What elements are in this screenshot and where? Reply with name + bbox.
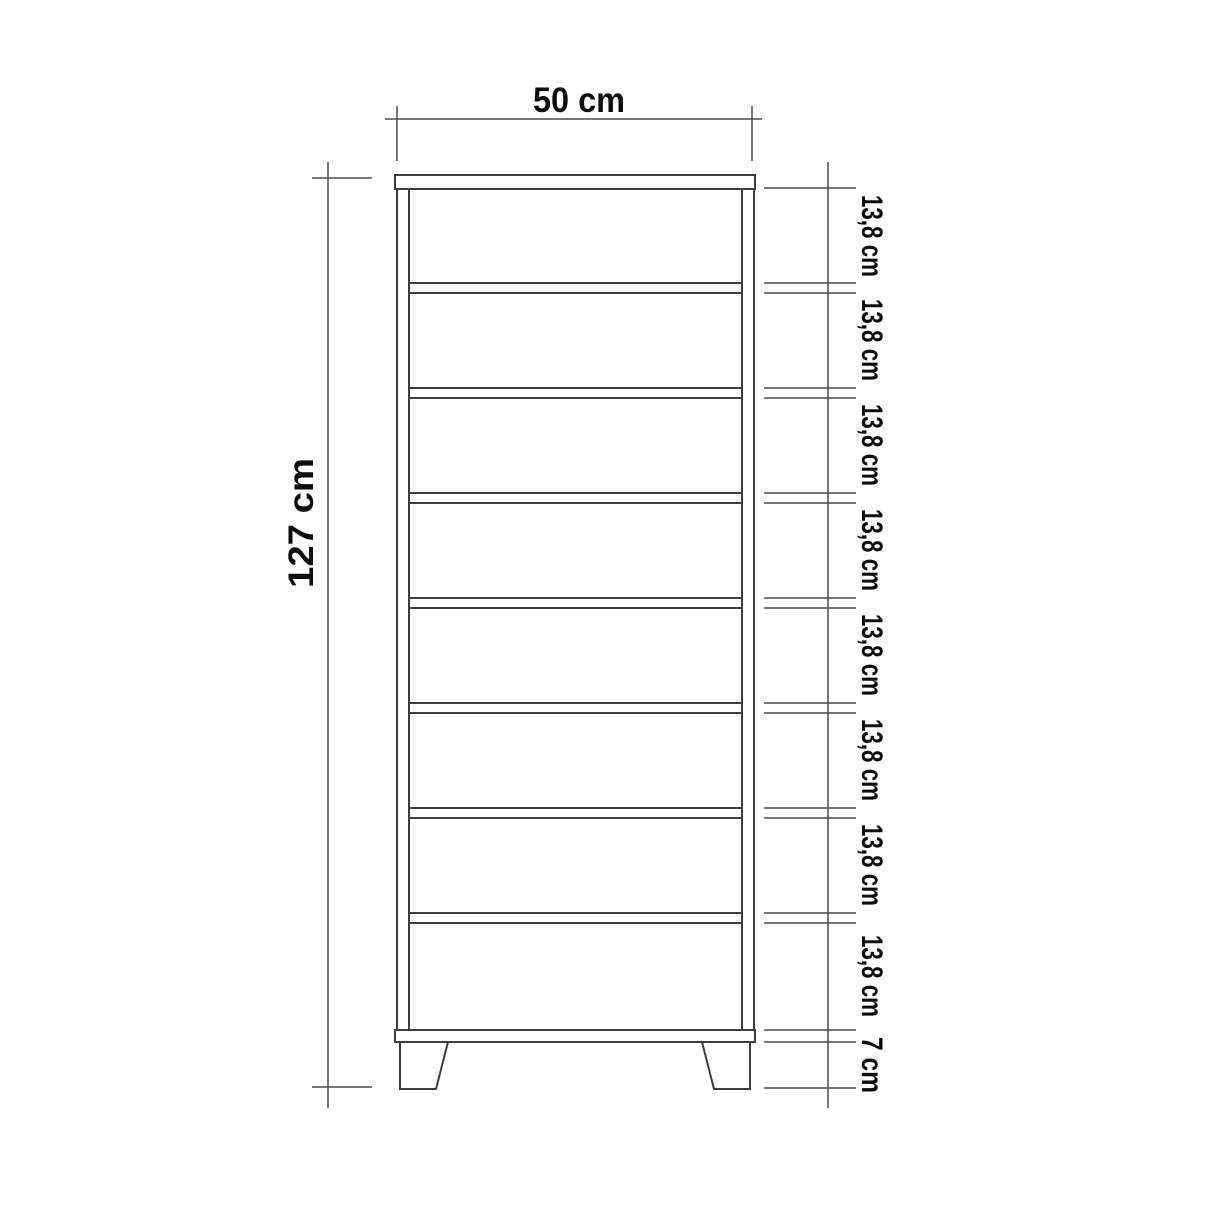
shelf-dimension-label: 13,8 cm — [855, 195, 888, 277]
shelf-line — [409, 493, 742, 503]
cabinet-right-leg — [702, 1042, 750, 1089]
shelf-line — [409, 598, 742, 608]
shelf-dimension-label: 13,8 cm — [855, 935, 888, 1017]
shelf-dimension-label: 13,8 cm — [855, 719, 888, 801]
shelf-dimension-label: 13,8 cm — [855, 299, 888, 381]
leg-dimension-label: 7 cm — [855, 1037, 888, 1093]
cabinet-top-panel — [395, 175, 755, 189]
left-dimension-label: 127 cm — [282, 458, 321, 588]
shelf-line — [409, 913, 742, 923]
cabinet-left-leg — [400, 1042, 448, 1089]
cabinet-right-wall — [742, 189, 754, 1030]
shelf-dimension-label: 13,8 cm — [855, 824, 888, 906]
right-dimension: 13,8 cm 13,8 cm 13,8 cm 13,8 cm 13,8 cm … — [764, 162, 888, 1108]
cabinet-outline — [395, 175, 755, 1089]
cabinet-bottom-panel — [395, 1030, 755, 1042]
shelf-dimension-label: 13,8 cm — [855, 404, 888, 486]
shelf-line — [409, 703, 742, 713]
dimension-drawing: 50 cm 127 cm — [0, 0, 1214, 1214]
shelf-line — [409, 388, 742, 398]
shelf-line — [409, 283, 742, 293]
top-dimension-label: 50 cm — [533, 81, 625, 120]
cabinet-left-wall — [397, 189, 409, 1030]
shelf-dimension-label: 13,8 cm — [855, 614, 888, 696]
top-dimension: 50 cm — [385, 81, 762, 161]
left-dimension: 127 cm — [282, 162, 372, 1108]
shelf-dimension-label: 13,8 cm — [855, 509, 888, 591]
drawing-canvas: 50 cm 127 cm — [0, 0, 1214, 1214]
shelf-line — [409, 808, 742, 818]
